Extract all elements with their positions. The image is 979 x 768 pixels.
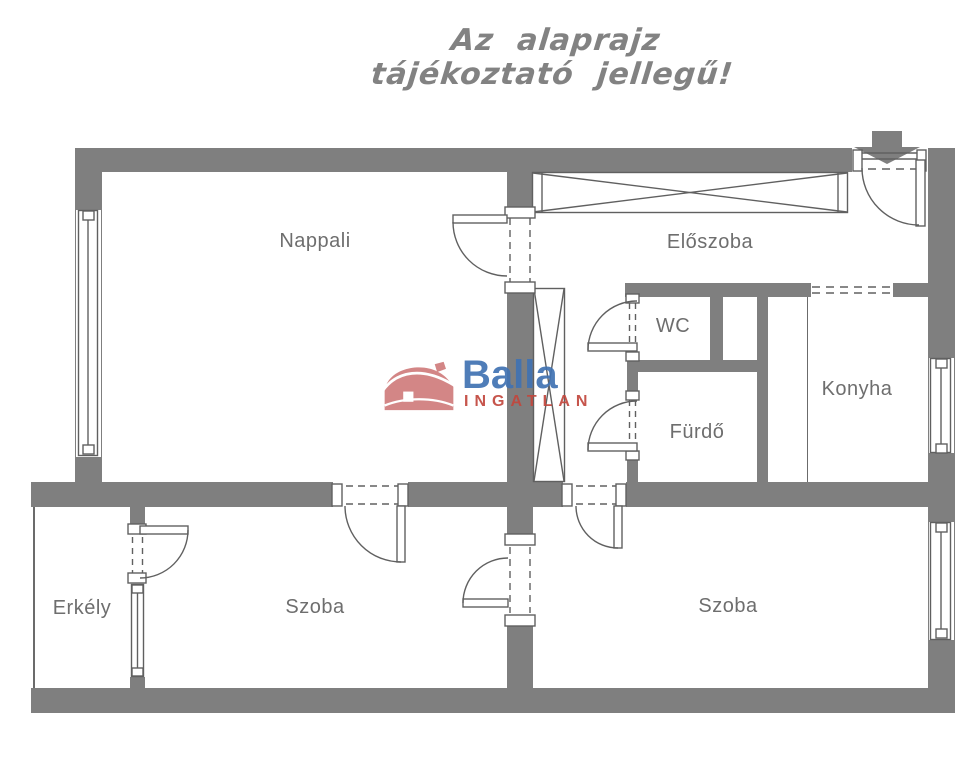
disclaimer-text: Az alaprajz tájékoztató jellegű! (330, 24, 777, 92)
logo-brand-text: Balla (462, 355, 558, 395)
logo-house-icon (380, 360, 458, 412)
opening-window-szoba (929, 522, 954, 640)
watermark-logo: Balla INGATLAN (380, 356, 610, 418)
wall-bottom (31, 688, 955, 713)
opening-nappali-door (507, 218, 533, 282)
opening-window-left (76, 210, 101, 457)
floor-plan: Az alaprajz tájékoztató jellegű! (0, 0, 979, 768)
disclaimer-line-1: Az alaprajz (334, 24, 778, 58)
wall-nappali-hall (507, 148, 533, 482)
opening-balcony-win (130, 584, 145, 677)
room-label-szoba-bal: Szoba (245, 596, 385, 619)
wall-konyha-top-right (893, 283, 928, 297)
disclaimer-line-2: tájékoztató jellegű! (330, 58, 774, 92)
wall-top (75, 148, 852, 172)
opening-szoba-left (333, 482, 408, 507)
room-label-eloszoba: Előszoba (640, 231, 780, 254)
room-label-furdo: Fürdő (632, 421, 762, 444)
wall-wc-bottom (627, 360, 768, 372)
opening-szoba-connect (507, 545, 533, 615)
logo-subtitle-text: INGATLAN (464, 393, 593, 411)
opening-window-konyha (929, 358, 954, 453)
room-label-szoba-jobb: Szoba (658, 595, 798, 618)
opening-wc-door (627, 303, 638, 353)
wall-wc-niche (710, 297, 723, 360)
hall-closet (533, 173, 848, 213)
room-label-konyha: Konyha (787, 378, 927, 401)
opening-balcony-door (130, 524, 145, 584)
wall-eloszoba-bottom (625, 283, 811, 297)
wall-middle-band (31, 482, 955, 507)
opening-entrance (852, 148, 928, 172)
opening-szoba-right (563, 482, 626, 507)
opening-kitchen (811, 283, 893, 297)
room-label-nappali: Nappali (245, 230, 385, 253)
room-label-wc: WC (638, 315, 708, 338)
wall-furdo-right (757, 297, 768, 482)
room-label-erkely: Erkély (32, 597, 132, 620)
